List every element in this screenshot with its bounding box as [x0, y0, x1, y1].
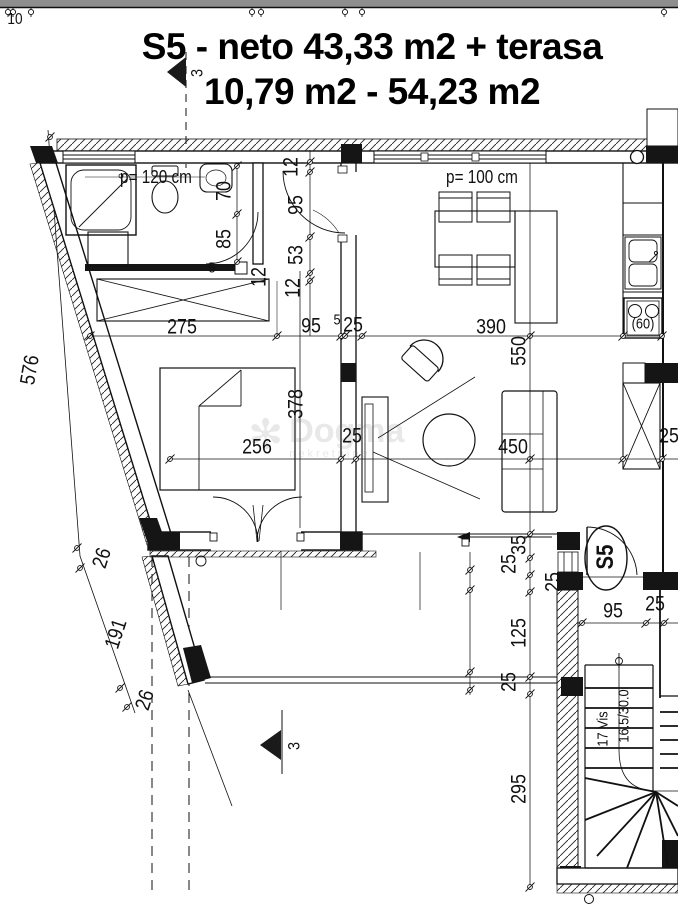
dim-label: 25	[342, 426, 362, 447]
dim-label: 95	[301, 316, 321, 337]
dim-label: 378	[286, 389, 307, 419]
dim-label: 5	[333, 313, 340, 328]
dim-label: 12	[281, 157, 302, 177]
dim-label: 53	[286, 245, 307, 265]
dim-label: 70	[214, 181, 235, 201]
dim-label: 550	[509, 336, 530, 366]
kitchen-sink	[625, 237, 661, 289]
coffee-table	[423, 414, 475, 466]
armchair	[400, 332, 451, 383]
dim-label: 576	[17, 354, 43, 387]
dim-label: 25	[645, 594, 665, 615]
dim-label: 12	[283, 278, 304, 298]
dim-label: 390	[476, 317, 506, 338]
staircase	[585, 653, 678, 868]
stove-width-label: (60)	[632, 317, 655, 332]
dim-label: 275	[167, 317, 197, 338]
dim-label: 5	[208, 261, 215, 276]
dim-label: 295	[509, 774, 530, 804]
washing-machine	[88, 232, 128, 266]
section-marker-top-label: 3	[189, 69, 206, 77]
dim-label: 256	[242, 437, 272, 458]
tv-cabinet	[362, 397, 388, 502]
top-boundary-bar	[0, 0, 678, 8]
dim-label: 25	[499, 554, 520, 574]
page-title: S5 - neto 43,33 m2 + terasa 10,79 m2 - 5…	[70, 24, 674, 114]
dim-label: 125	[509, 618, 530, 648]
top-dimension-markers	[5, 7, 666, 17]
wall-dim-10: 10	[7, 12, 22, 28]
dim-label: 12	[249, 267, 270, 287]
stair-step-dims-label: 16.5/30.0	[617, 689, 632, 742]
title-line2: 10,79 m2 - 54,23 m2	[70, 69, 674, 114]
dim-label: 450	[498, 437, 528, 458]
section-marker-bottom-label: 3	[286, 742, 303, 750]
dim-label: 85	[214, 229, 235, 249]
dining-table	[435, 211, 515, 267]
dim-label: 25	[543, 572, 564, 592]
floor-plan-drawing	[0, 0, 678, 904]
parapet-height-bathroom: p= 120 cm	[120, 168, 192, 186]
section-marker-bottom	[260, 710, 282, 774]
floor-plan-page: S5 - neto 43,33 m2 + terasa 10,79 m2 - 5…	[0, 0, 678, 904]
dim-label: 95	[286, 195, 307, 215]
dimension-lines	[85, 150, 678, 892]
dim-label: 25	[659, 426, 678, 447]
kitchen-peninsula	[515, 211, 557, 323]
dining-chairs	[439, 192, 510, 285]
bed	[160, 368, 295, 490]
dim-label: 25	[499, 672, 520, 692]
parapet-height-living: p= 100 cm	[446, 168, 518, 186]
unit-number-label: S5	[594, 545, 618, 570]
dim-label: 95	[603, 601, 623, 622]
dim-label: 35	[509, 535, 530, 555]
dim-label: 25	[343, 315, 363, 336]
title-line1: S5 - neto 43,33 m2 + terasa	[70, 24, 674, 69]
stair-risers-label: 17 Vis	[596, 711, 611, 746]
